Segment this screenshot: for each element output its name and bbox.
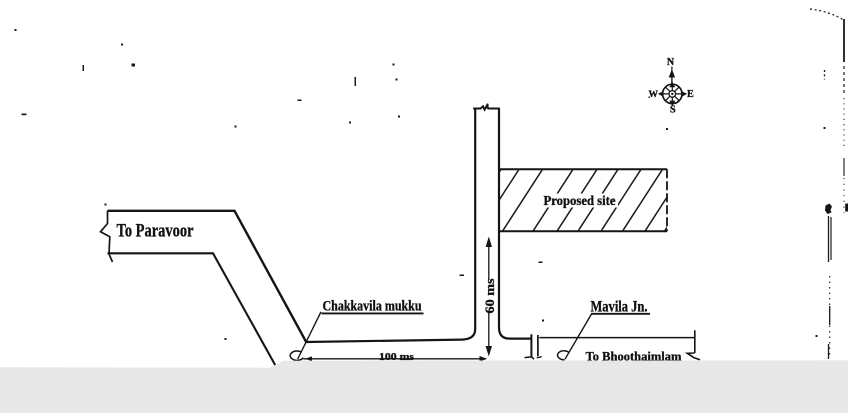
svg-text:N: N	[667, 57, 675, 68]
svg-text:To Paravoor: To Paravoor	[117, 222, 194, 242]
svg-text:60 ms: 60 ms	[483, 278, 497, 313]
svg-text:Proposed site: Proposed site	[544, 193, 616, 208]
svg-text:Chakkavila mukku: Chakkavila mukku	[323, 298, 422, 314]
svg-text:W: W	[648, 90, 658, 100]
svg-text:S: S	[670, 105, 676, 116]
svg-text:E: E	[687, 89, 694, 100]
